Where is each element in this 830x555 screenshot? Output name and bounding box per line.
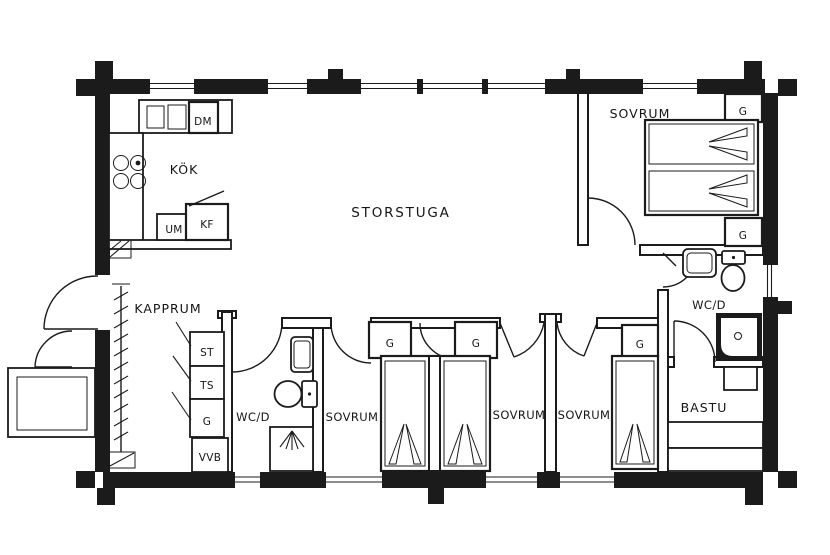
label-wardrobe-2: G — [472, 338, 480, 350]
wall-sovrum3-bastu — [658, 290, 668, 472]
label-wardrobe-1: G — [386, 338, 394, 350]
label-wardrobe-3: G — [636, 339, 644, 351]
door-leaf-sovrum3 — [584, 323, 597, 356]
label-wardrobe-5: G — [739, 230, 747, 242]
window — [483, 472, 540, 488]
door-arc-entry-outer — [44, 276, 98, 329]
label-wardrobe-kapprum: G — [203, 416, 211, 428]
label-wardrobe-4: G — [739, 106, 747, 118]
sauna-bench-lower — [668, 448, 763, 471]
room-label-storstuga: STORSTUGA — [351, 205, 450, 221]
wall-sovrum2-sovrum3 — [545, 314, 556, 472]
shower-icon — [716, 313, 762, 361]
room-label-wcd-1: WC/D — [236, 410, 270, 424]
label-oven: UM — [165, 224, 182, 236]
floor-plan: STORSTUGA KÖK KAPPRUM SOVRUM SOVRUM SOVR… — [0, 0, 830, 555]
cabinet-door-swing — [176, 322, 191, 346]
entry-porch — [8, 368, 95, 437]
room-label-sovrum-1: SOVRUM — [326, 410, 379, 424]
room-label-kapprum: KAPPRUM — [134, 301, 201, 316]
coat-rail — [108, 284, 135, 468]
kitchen-peninsula — [109, 240, 231, 249]
label-cleaning-cabinet: ST — [200, 347, 214, 359]
label-dishwasher: DM — [194, 116, 212, 128]
door-arc-sovrum4 — [588, 198, 635, 245]
door-arc-sovrum2 — [514, 323, 544, 357]
bastu-fixtures — [668, 367, 763, 471]
door-arc-entry-inner — [35, 331, 72, 367]
room-label-sovrum-2: SOVRUM — [493, 408, 546, 422]
door-arc-sovrum1 — [331, 323, 371, 363]
label-fridge-freezer: KF — [200, 219, 214, 231]
sauna-heater — [724, 367, 757, 390]
beds-sovrum1-2 — [381, 356, 490, 471]
door-arc-wcd1 — [232, 322, 282, 372]
cabinet-door-swing — [173, 356, 191, 381]
wcd1-fixtures — [270, 337, 317, 471]
room-label-sovrum-3: SOVRUM — [558, 408, 611, 422]
window — [232, 472, 263, 488]
room-label-sovrum-4: SOVRUM — [610, 106, 671, 121]
window — [323, 472, 385, 488]
window — [557, 472, 617, 488]
room-label-kok: KÖK — [170, 161, 199, 177]
door-arc-sovrum3 — [557, 323, 584, 356]
wall-wcd2-bastu-a — [668, 357, 674, 367]
window-triple — [358, 79, 548, 94]
sauna-bench-upper — [668, 422, 763, 448]
label-water-heater: VVB — [199, 452, 221, 464]
window — [265, 79, 310, 94]
room-label-bastu: BASTU — [681, 400, 728, 415]
wall-strip-top-a — [282, 318, 331, 328]
window — [147, 79, 197, 94]
shower-icon — [270, 427, 313, 471]
beds-sovrum4 — [645, 120, 758, 215]
window — [763, 262, 778, 300]
cabinet-door-swing — [172, 392, 191, 420]
room-label-wcd-2: WC/D — [692, 298, 726, 312]
bed-sovrum3 — [612, 356, 658, 469]
floor-plan-drawing: STORSTUGA KÖK KAPPRUM SOVRUM SOVRUM SOVR… — [0, 0, 830, 555]
toilet-icon — [275, 381, 318, 407]
door-leaf-sovrum2 — [500, 323, 514, 357]
door-arc-bastu — [674, 321, 715, 362]
window — [640, 79, 700, 94]
toilet-icon — [722, 251, 746, 291]
label-drying-cabinet: TS — [199, 380, 214, 392]
wall-storstuga-sovrum4 — [578, 93, 588, 245]
